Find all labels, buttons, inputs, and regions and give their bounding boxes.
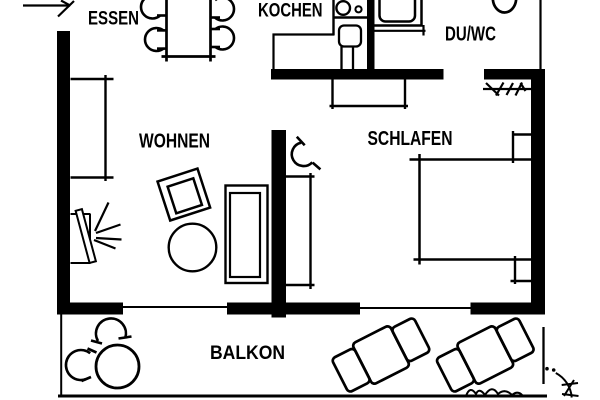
svg-text:DU/WC: DU/WC — [445, 24, 496, 46]
svg-text:WOHNEN: WOHNEN — [139, 131, 210, 153]
svg-text:KOCHEN: KOCHEN — [258, 0, 323, 22]
svg-text:BALKON: BALKON — [210, 342, 285, 364]
svg-text:SCHLAFEN: SCHLAFEN — [368, 128, 453, 150]
svg-text:ESSEN: ESSEN — [88, 9, 139, 30]
